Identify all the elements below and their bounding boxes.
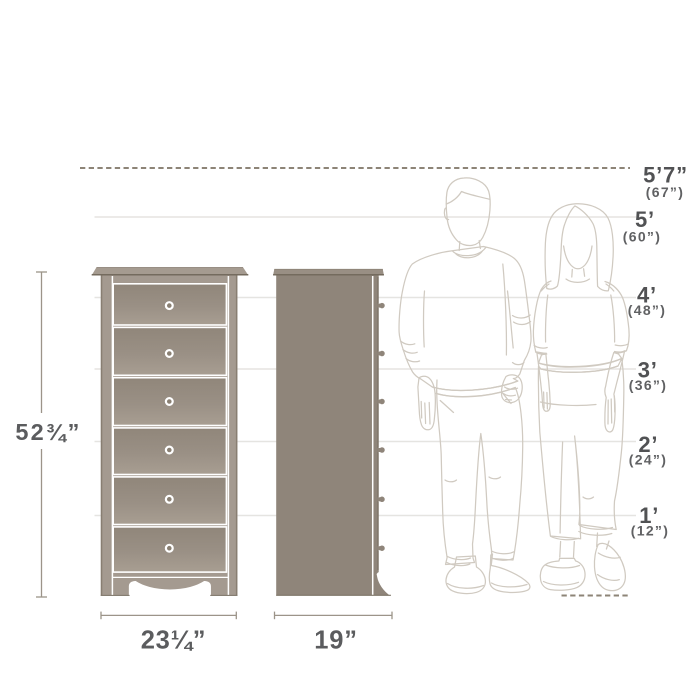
svg-text:52¾”: 52¾”: [15, 419, 81, 445]
svg-text:23¼”: 23¼”: [141, 627, 207, 655]
svg-text:(36”): (36”): [629, 377, 667, 393]
svg-text:(48”): (48”): [628, 302, 666, 318]
svg-text:19”: 19”: [314, 627, 358, 655]
svg-text:(12”): (12”): [631, 523, 669, 539]
svg-text:(60”): (60”): [623, 229, 661, 245]
svg-text:(67”): (67”): [646, 184, 684, 200]
svg-text:(24”): (24”): [629, 451, 667, 467]
